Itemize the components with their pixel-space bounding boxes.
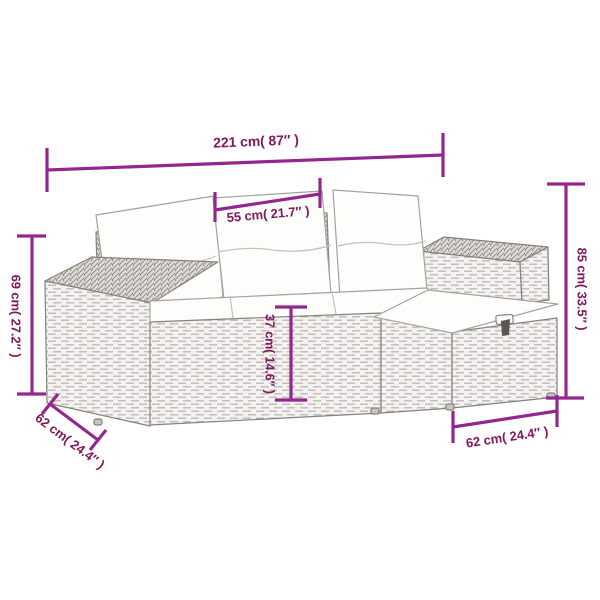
dimension-label-total-height: 85 cm( 33.5″ ): [576, 248, 589, 331]
dimension-label-total-width: 221 cm( 87″ ): [213, 132, 299, 149]
sofa-illustration: [0, 0, 600, 600]
product-dimension-diagram: 221 cm( 87″ ) 55 cm( 21.7″ ) 85 cm( 33.5…: [0, 0, 600, 600]
dimension-label-armrest-height: 69 cm( 27.2″ ): [10, 275, 23, 358]
footstool: [374, 290, 558, 413]
dimension-label-seat-height: 37 cm( 14.6″ ): [263, 314, 276, 394]
